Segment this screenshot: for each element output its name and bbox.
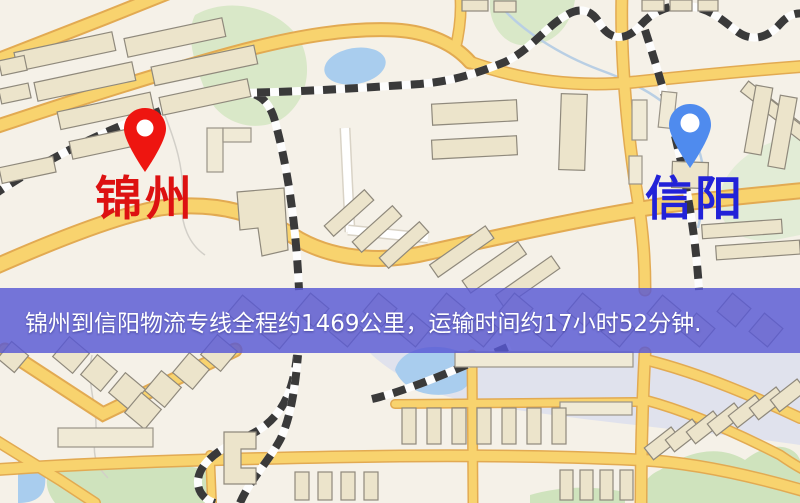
- pin-hole: [681, 114, 700, 133]
- pin-hole: [137, 120, 154, 137]
- route-info-banner: 锦州到信阳物流专线全程约1469公里，运输时间约17小时52分钟.: [0, 288, 800, 353]
- origin-pin[interactable]: [115, 102, 175, 174]
- map-view[interactable]: 锦州 信阳 锦州到信阳物流专线全程约1469公里，运输时间约17小时52分钟.: [0, 0, 800, 503]
- map-background: [0, 0, 800, 503]
- destination-label: 信阳: [635, 176, 755, 223]
- destination-pin[interactable]: [660, 98, 720, 170]
- origin-label: 锦州: [85, 176, 205, 223]
- map-pin-icon: [124, 108, 166, 172]
- route-info-text: 锦州到信阳物流专线全程约1469公里，运输时间约17小时52分钟.: [0, 304, 701, 338]
